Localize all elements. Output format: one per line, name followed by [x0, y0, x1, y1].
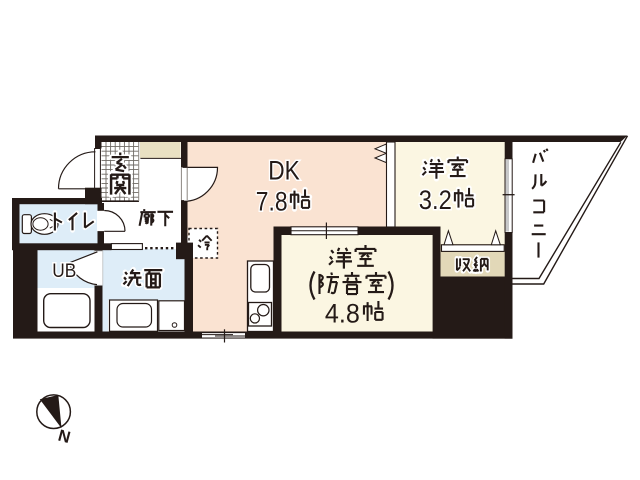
svg-text:UB: UB — [52, 260, 76, 281]
svg-text:4.8: 4.8 — [325, 298, 360, 329]
svg-text:3.2: 3.2 — [419, 186, 452, 216]
svg-text:7.8: 7.8 — [256, 187, 288, 217]
svg-text:DK: DK — [268, 156, 300, 186]
